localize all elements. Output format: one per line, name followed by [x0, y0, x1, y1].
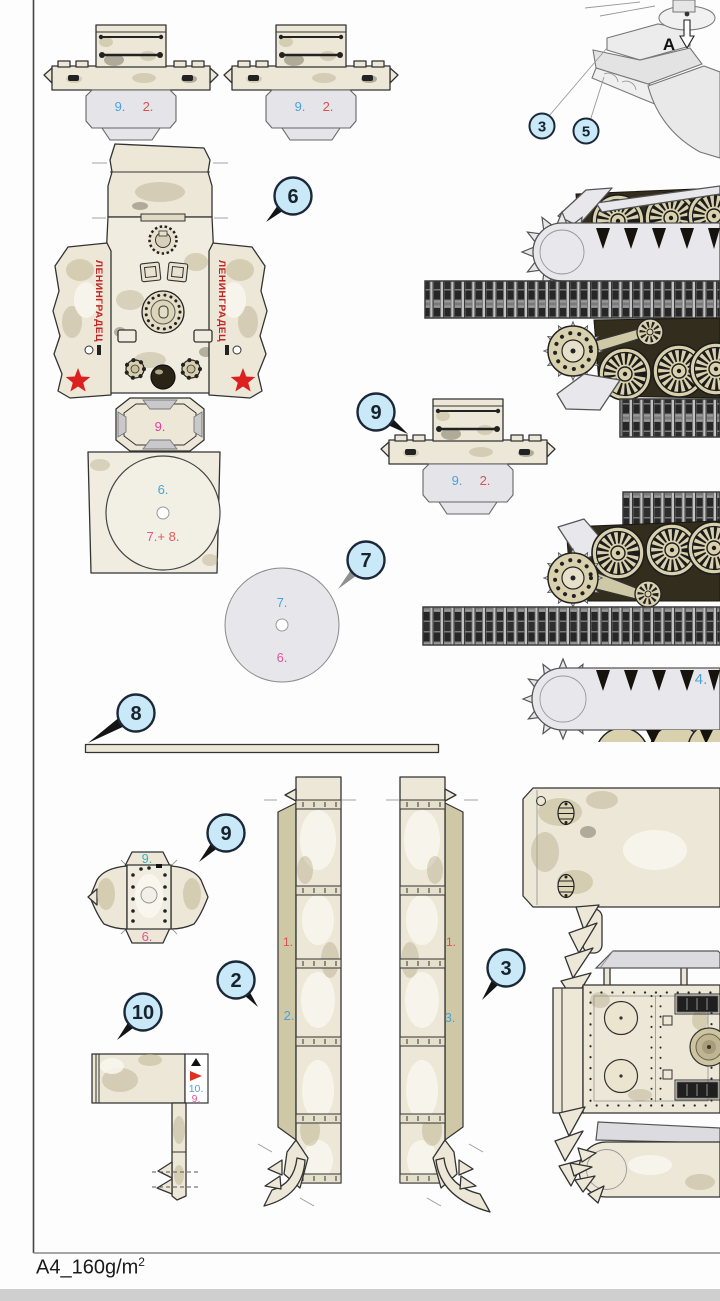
svg-text:10: 10	[132, 1002, 154, 1024]
callout-turret: 6	[266, 178, 312, 223]
part-stowage-box-copy-3	[381, 399, 555, 514]
part-fender-left: 1. 2.	[258, 777, 356, 1206]
svg-text:6: 6	[287, 186, 298, 208]
part-hatch-dome: 9. 6.	[88, 852, 208, 944]
callout-hatch-dome: 9	[199, 815, 245, 863]
track-assembly-lower: 4.	[423, 492, 720, 780]
tread-strip	[620, 399, 720, 437]
base-ref-label: 7.+ 8.	[147, 529, 180, 544]
part-engine-deck	[553, 905, 720, 1203]
fender-left-side-label: 1.	[283, 935, 293, 949]
callout-stowage-mid: 9	[358, 394, 409, 435]
hatch-oval-icon	[558, 802, 574, 825]
papercraft-sheet: 9. 2. A 3 5	[0, 0, 720, 1301]
paper-spec-label: A4_160g/m2	[36, 1255, 145, 1280]
fender-left-main-label: 2.	[284, 1008, 295, 1023]
part-fender-right: 1. 3.	[386, 777, 490, 1212]
disc-label-bottom: 6.	[277, 650, 288, 665]
callout-mudguard: 10	[117, 994, 162, 1041]
dome-label-top: 9.	[142, 852, 152, 866]
track-band	[532, 668, 720, 730]
dome-vent-icon	[151, 365, 175, 389]
assembly-illustration: A 3 5	[530, 0, 720, 158]
turret-banner-left: ЛЕНИНГРАДЕЦ	[93, 260, 104, 342]
part-stowage-box-copy-1	[44, 25, 218, 140]
step-letter: A	[663, 35, 675, 54]
base-part-label: 6.	[158, 482, 169, 497]
svg-text:2: 2	[230, 970, 241, 992]
part-mudguard: 10. 9.	[92, 1054, 208, 1200]
disc-label-top: 7.	[277, 595, 288, 610]
track-part-label: 4.	[695, 671, 708, 688]
part-hull-side	[523, 788, 720, 907]
turret-banner-right: ЛЕНИНГРАДЕЦ	[216, 260, 227, 342]
svg-text:9: 9	[370, 402, 381, 424]
dome-label-bottom: 6.	[142, 929, 153, 944]
part-ring-disc: 7. 6.	[225, 568, 339, 682]
part-axle-strip	[86, 745, 439, 753]
svg-text:7: 7	[360, 550, 371, 572]
tread-strip	[425, 281, 720, 318]
photo-edge	[0, 1289, 720, 1301]
hatch-oval-icon	[558, 875, 574, 898]
tread-strip	[423, 607, 720, 645]
callout-fender-right: 3	[482, 950, 525, 1001]
leader-line	[549, 48, 607, 116]
callout-5-number: 5	[582, 124, 590, 141]
part-stowage-box-copy-2	[224, 25, 398, 140]
svg-text:3: 3	[500, 958, 511, 980]
fender-right-side-label: 1.	[446, 935, 456, 949]
svg-text:8: 8	[130, 703, 141, 725]
callout-fender-left: 2	[218, 962, 259, 1008]
leader-line	[590, 77, 604, 121]
neck-ref-label: 9.	[155, 419, 166, 434]
part-turret-unfold: ЛЕНИНГРАДЕЦ ЛЕНИНГРАДЕЦ 9.	[53, 144, 267, 573]
callout-axle-strip: 8	[88, 695, 155, 744]
fender-right-main-label: 3.	[445, 1010, 456, 1025]
mudguard-label-pink: 9.	[192, 1093, 201, 1105]
svg-text:9: 9	[220, 823, 231, 845]
callout-3-top-number: 3	[538, 119, 546, 136]
callout-ring-disc: 7	[338, 542, 385, 590]
